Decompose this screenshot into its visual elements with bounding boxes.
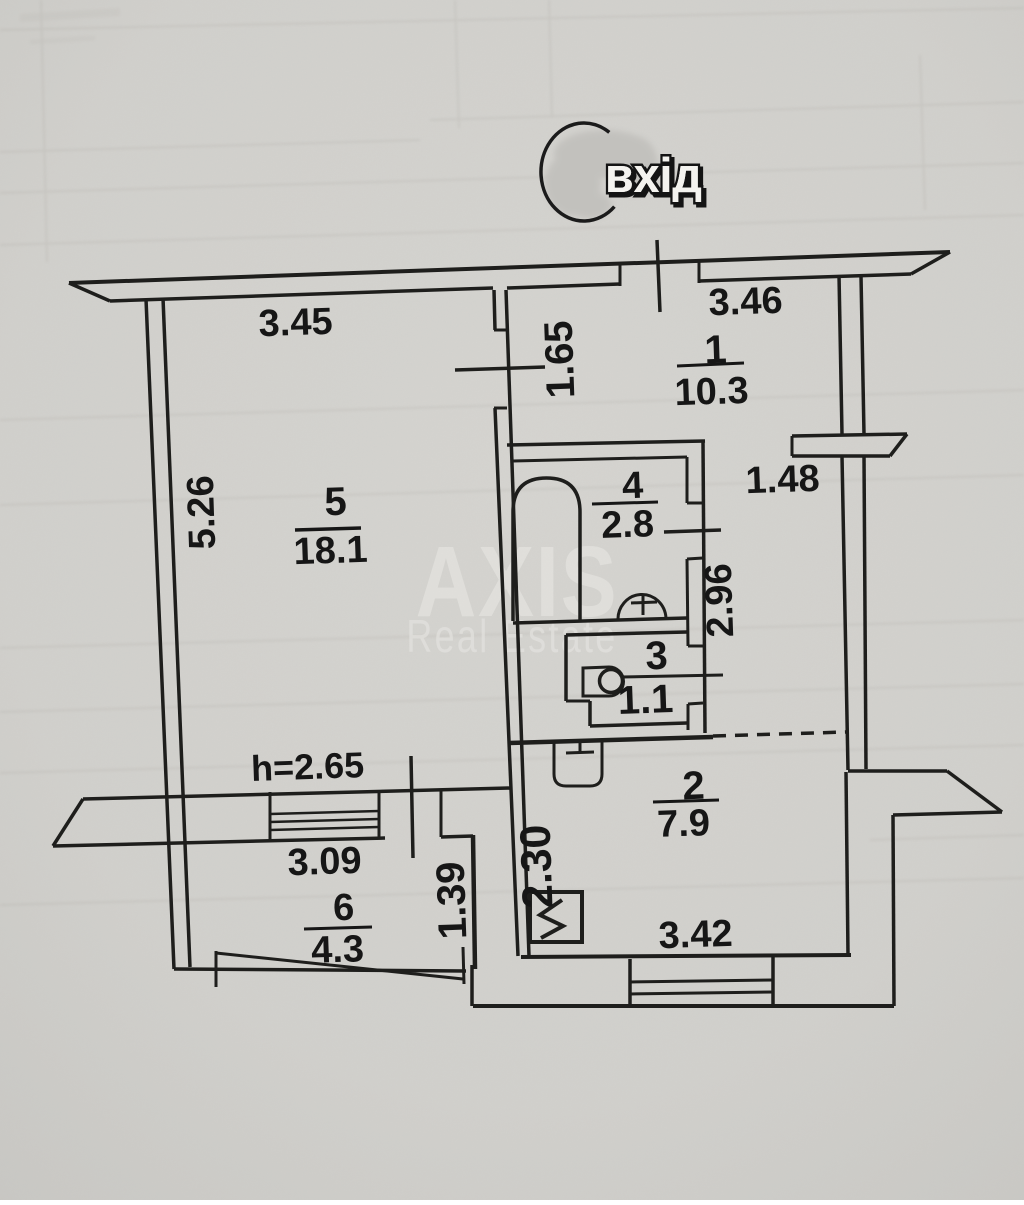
svg-text:2.30: 2.30 <box>512 824 563 909</box>
svg-text:5: 5 <box>324 480 348 525</box>
svg-text:3: 3 <box>645 634 669 679</box>
svg-text:4: 4 <box>621 465 644 508</box>
svg-text:1.1: 1.1 <box>617 677 674 723</box>
svg-text:1.48: 1.48 <box>745 458 820 503</box>
svg-text:3.09: 3.09 <box>287 840 362 885</box>
svg-text:1.39: 1.39 <box>429 861 476 940</box>
svg-text:2.96: 2.96 <box>698 563 743 638</box>
svg-text:3.42: 3.42 <box>658 913 733 958</box>
svg-text:1.65: 1.65 <box>537 320 584 399</box>
svg-text:вхід: вхід <box>605 149 702 203</box>
svg-text:18.1: 18.1 <box>293 529 368 574</box>
svg-text:5.26: 5.26 <box>180 475 225 550</box>
svg-text:4.3: 4.3 <box>310 928 364 972</box>
svg-text:6: 6 <box>332 887 355 930</box>
svg-text:h=2.65: h=2.65 <box>250 744 364 789</box>
svg-text:3.45: 3.45 <box>258 301 333 346</box>
svg-text:7.9: 7.9 <box>656 802 710 846</box>
svg-text:10.3: 10.3 <box>674 370 749 415</box>
svg-text:3.46: 3.46 <box>708 280 783 325</box>
svg-text:2.8: 2.8 <box>600 503 654 547</box>
